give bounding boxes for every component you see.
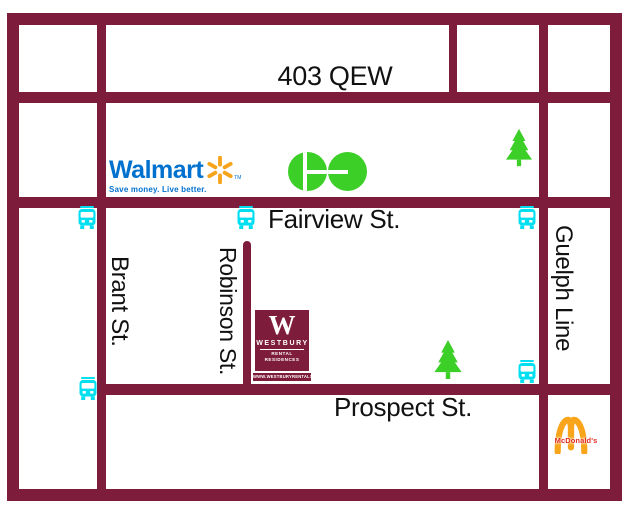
- westbury-divider: [260, 349, 304, 350]
- highway-divider-road: [449, 25, 457, 95]
- bus-icon: [77, 206, 97, 229]
- walmart-tagline: Save money. Live better.: [109, 185, 241, 194]
- mcdonalds-arches-icon: [552, 416, 590, 454]
- guelph-line-road: [539, 25, 548, 489]
- highway-south-road: [19, 92, 610, 103]
- tree-icon: [505, 128, 533, 167]
- bus-icon: [517, 360, 537, 383]
- mcdonalds-logo: McDonald's: [548, 416, 604, 458]
- walmart-wordmark: Walmart: [109, 158, 203, 183]
- bus-icon: [236, 206, 256, 229]
- map-canvas: 403 QEW Fairview St. Prospect St. Brant …: [0, 0, 630, 512]
- tree-icon: [433, 340, 463, 379]
- fairview-street-label: Fairview St.: [268, 204, 400, 235]
- westbury-logo-square: W WESTBURY RENTAL RESIDENCES: [255, 310, 309, 371]
- robinson-street-label: Robinson St.: [214, 247, 241, 375]
- brant-street-label: Brant St.: [105, 256, 133, 347]
- bus-icon: [78, 377, 98, 400]
- prospect-street-label: Prospect St.: [334, 392, 472, 423]
- go-transit-logo: [288, 152, 368, 192]
- go-letter-o-icon: [328, 152, 367, 191]
- guelph-line-label: Guelph Line: [549, 225, 577, 351]
- westbury-name: WESTBURY: [256, 340, 309, 348]
- walmart-spark-icon: [206, 156, 234, 184]
- bus-icon: [517, 206, 537, 229]
- walmart-logo: Walmart TM Save money. Live better.: [109, 156, 241, 194]
- go-letter-g-icon: [288, 152, 327, 191]
- walmart-trademark: TM: [234, 175, 241, 181]
- westbury-subtitle: RENTAL RESIDENCES: [255, 351, 309, 363]
- westbury-website: WWW.WESTBURYRENTALS.COM: [253, 373, 311, 381]
- robinson-street-road: [243, 241, 251, 395]
- highway-label: 403 QEW: [250, 61, 420, 92]
- mcdonalds-name: McDonald's: [548, 436, 604, 445]
- westbury-logo: W WESTBURY RENTAL RESIDENCES WWW.WESTBUR…: [253, 310, 311, 381]
- westbury-w-monogram: W: [255, 311, 309, 340]
